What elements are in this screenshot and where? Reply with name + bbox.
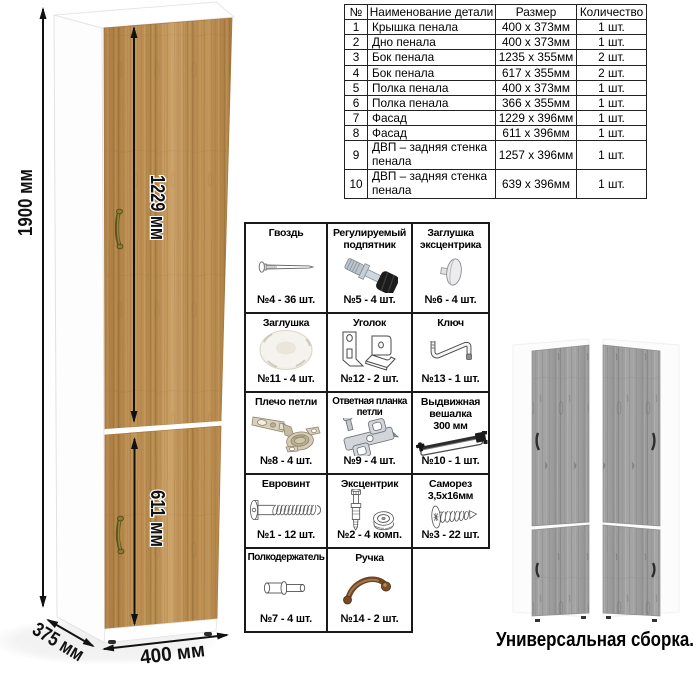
svg-text:611 мм: 611 мм — [146, 490, 168, 547]
svg-text:Универсальная сборка.: Универсальная сборка. — [496, 629, 694, 651]
svg-text:1229 мм: 1229 мм — [146, 175, 168, 240]
svg-text:1900 мм: 1900 мм — [15, 169, 37, 236]
